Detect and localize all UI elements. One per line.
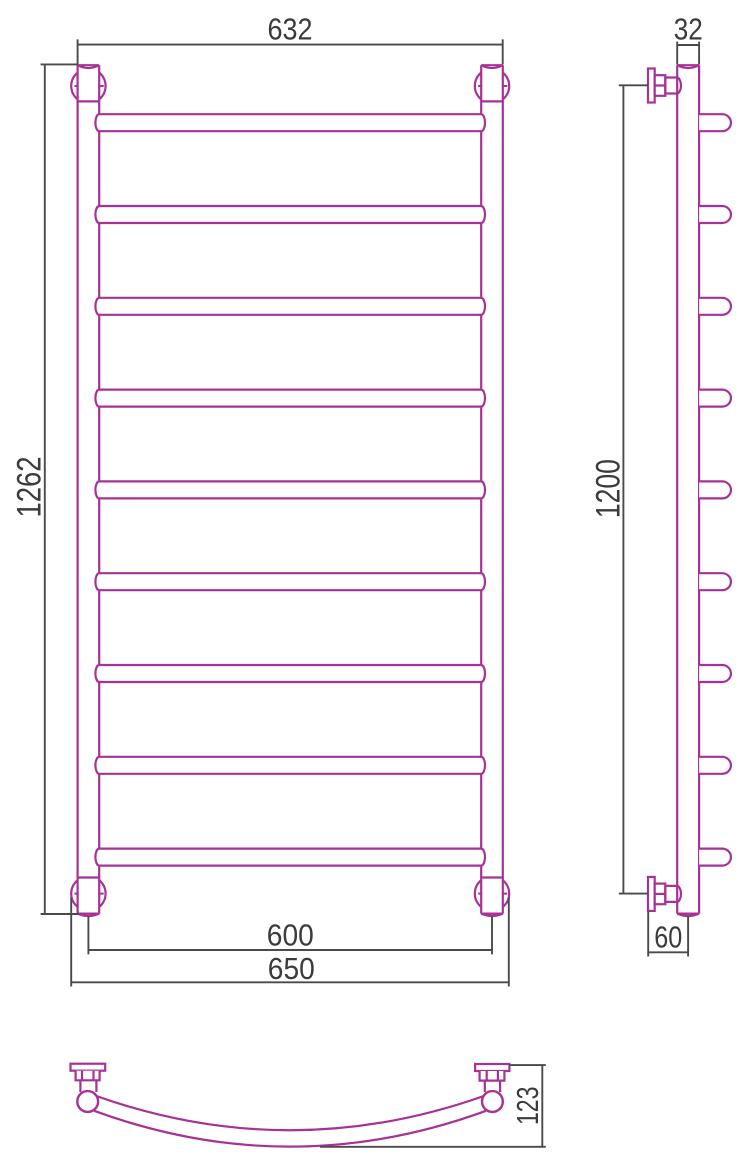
svg-text:1262: 1262 xyxy=(11,457,49,518)
svg-text:123: 123 xyxy=(510,1087,545,1126)
svg-text:632: 632 xyxy=(268,12,313,47)
svg-text:1200: 1200 xyxy=(590,459,628,518)
svg-text:32: 32 xyxy=(674,12,703,47)
svg-text:60: 60 xyxy=(654,920,682,955)
svg-text:600: 600 xyxy=(267,917,314,952)
svg-text:650: 650 xyxy=(268,951,315,986)
